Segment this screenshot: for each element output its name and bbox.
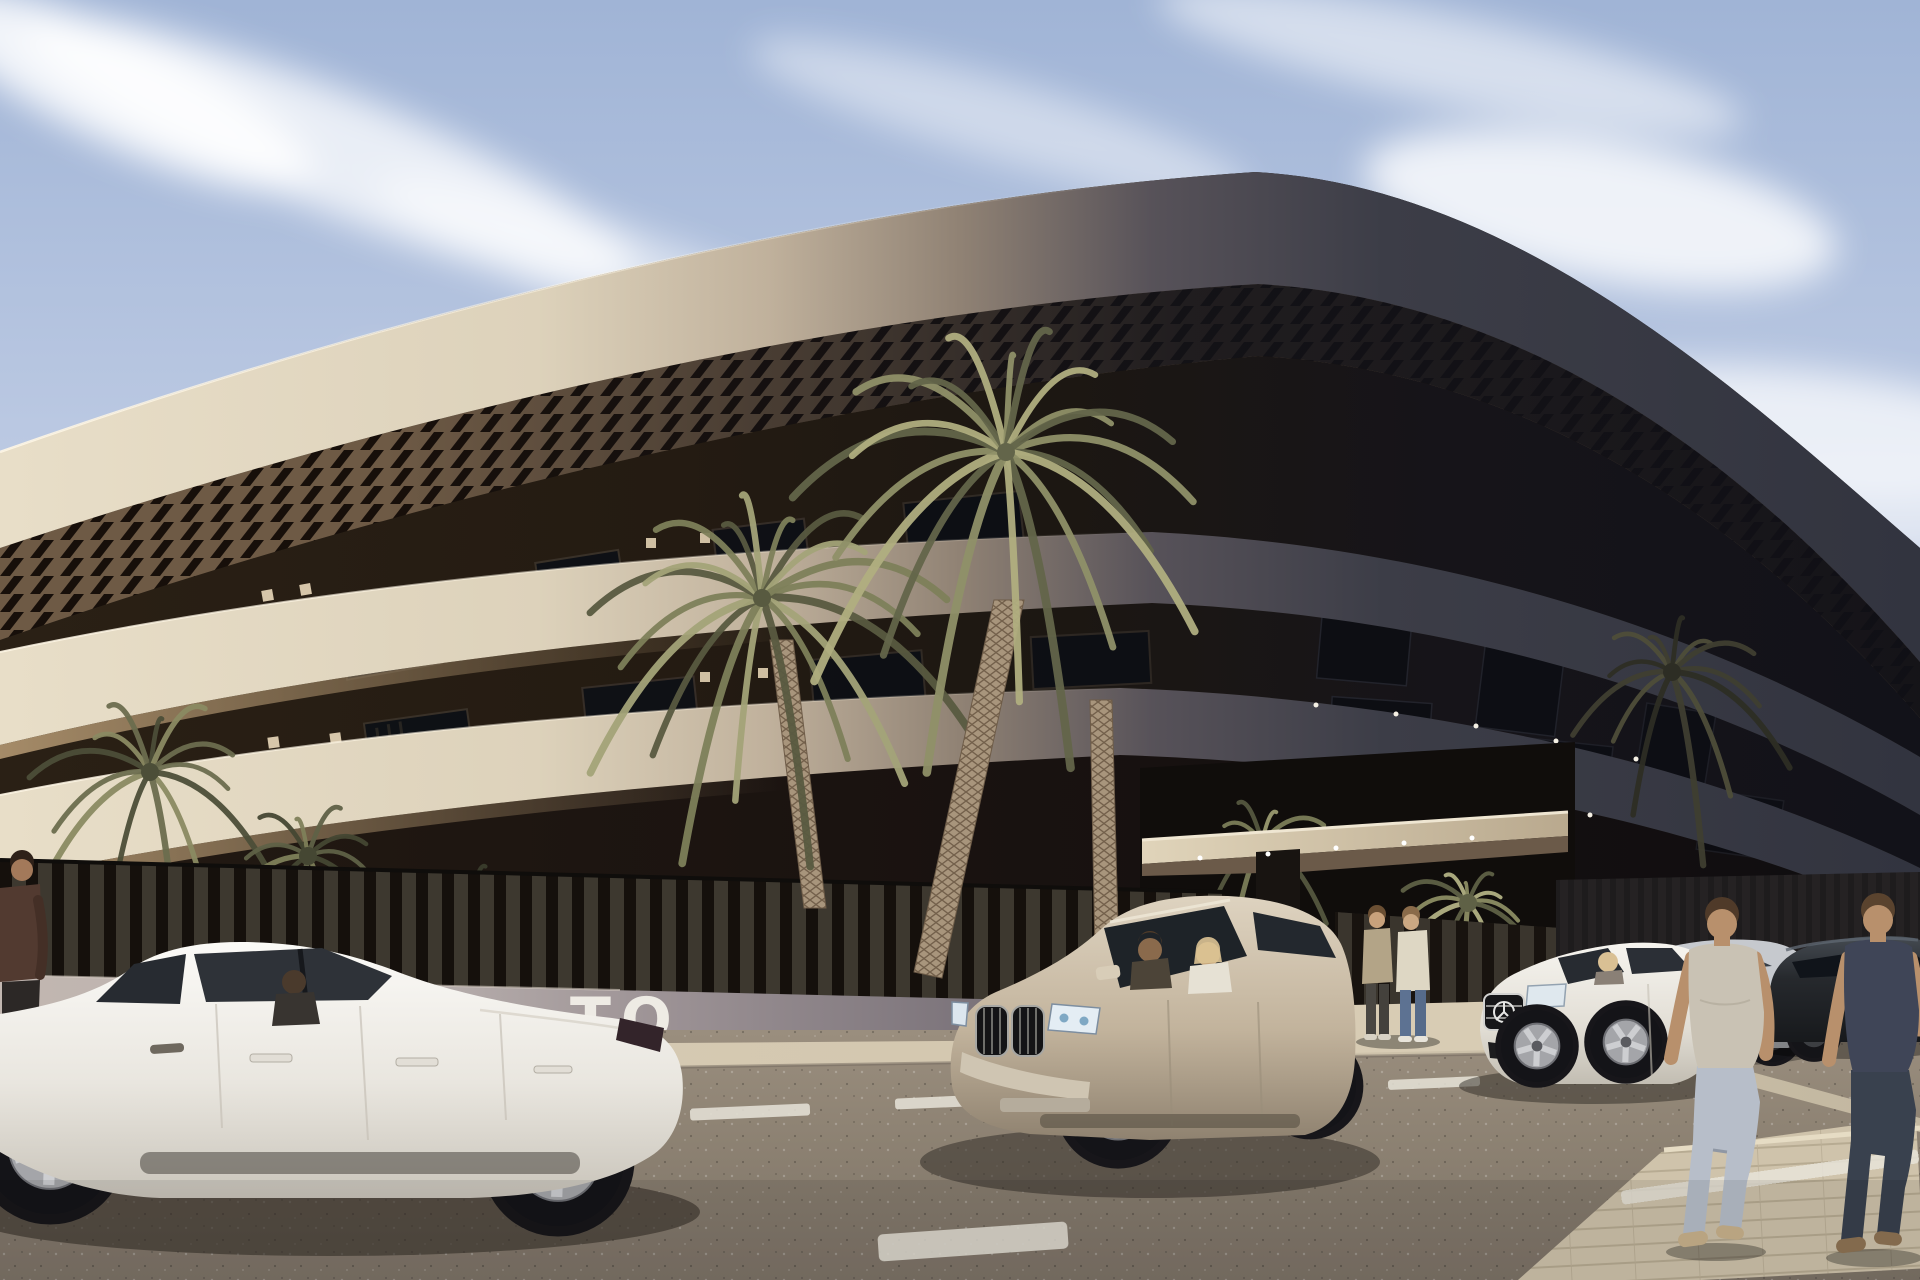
suv-headlight-right (1048, 1004, 1100, 1034)
vignette (0, 1180, 1920, 1280)
render-canvas: TO (0, 0, 1920, 1280)
wheel (1495, 1004, 1579, 1088)
suv-skid-plate (1000, 1098, 1090, 1112)
mercedes-headlight (1526, 984, 1566, 1008)
scene-render: TO (0, 0, 1920, 1280)
suv-headlight-left (952, 1002, 968, 1026)
wheel (1584, 1000, 1668, 1084)
